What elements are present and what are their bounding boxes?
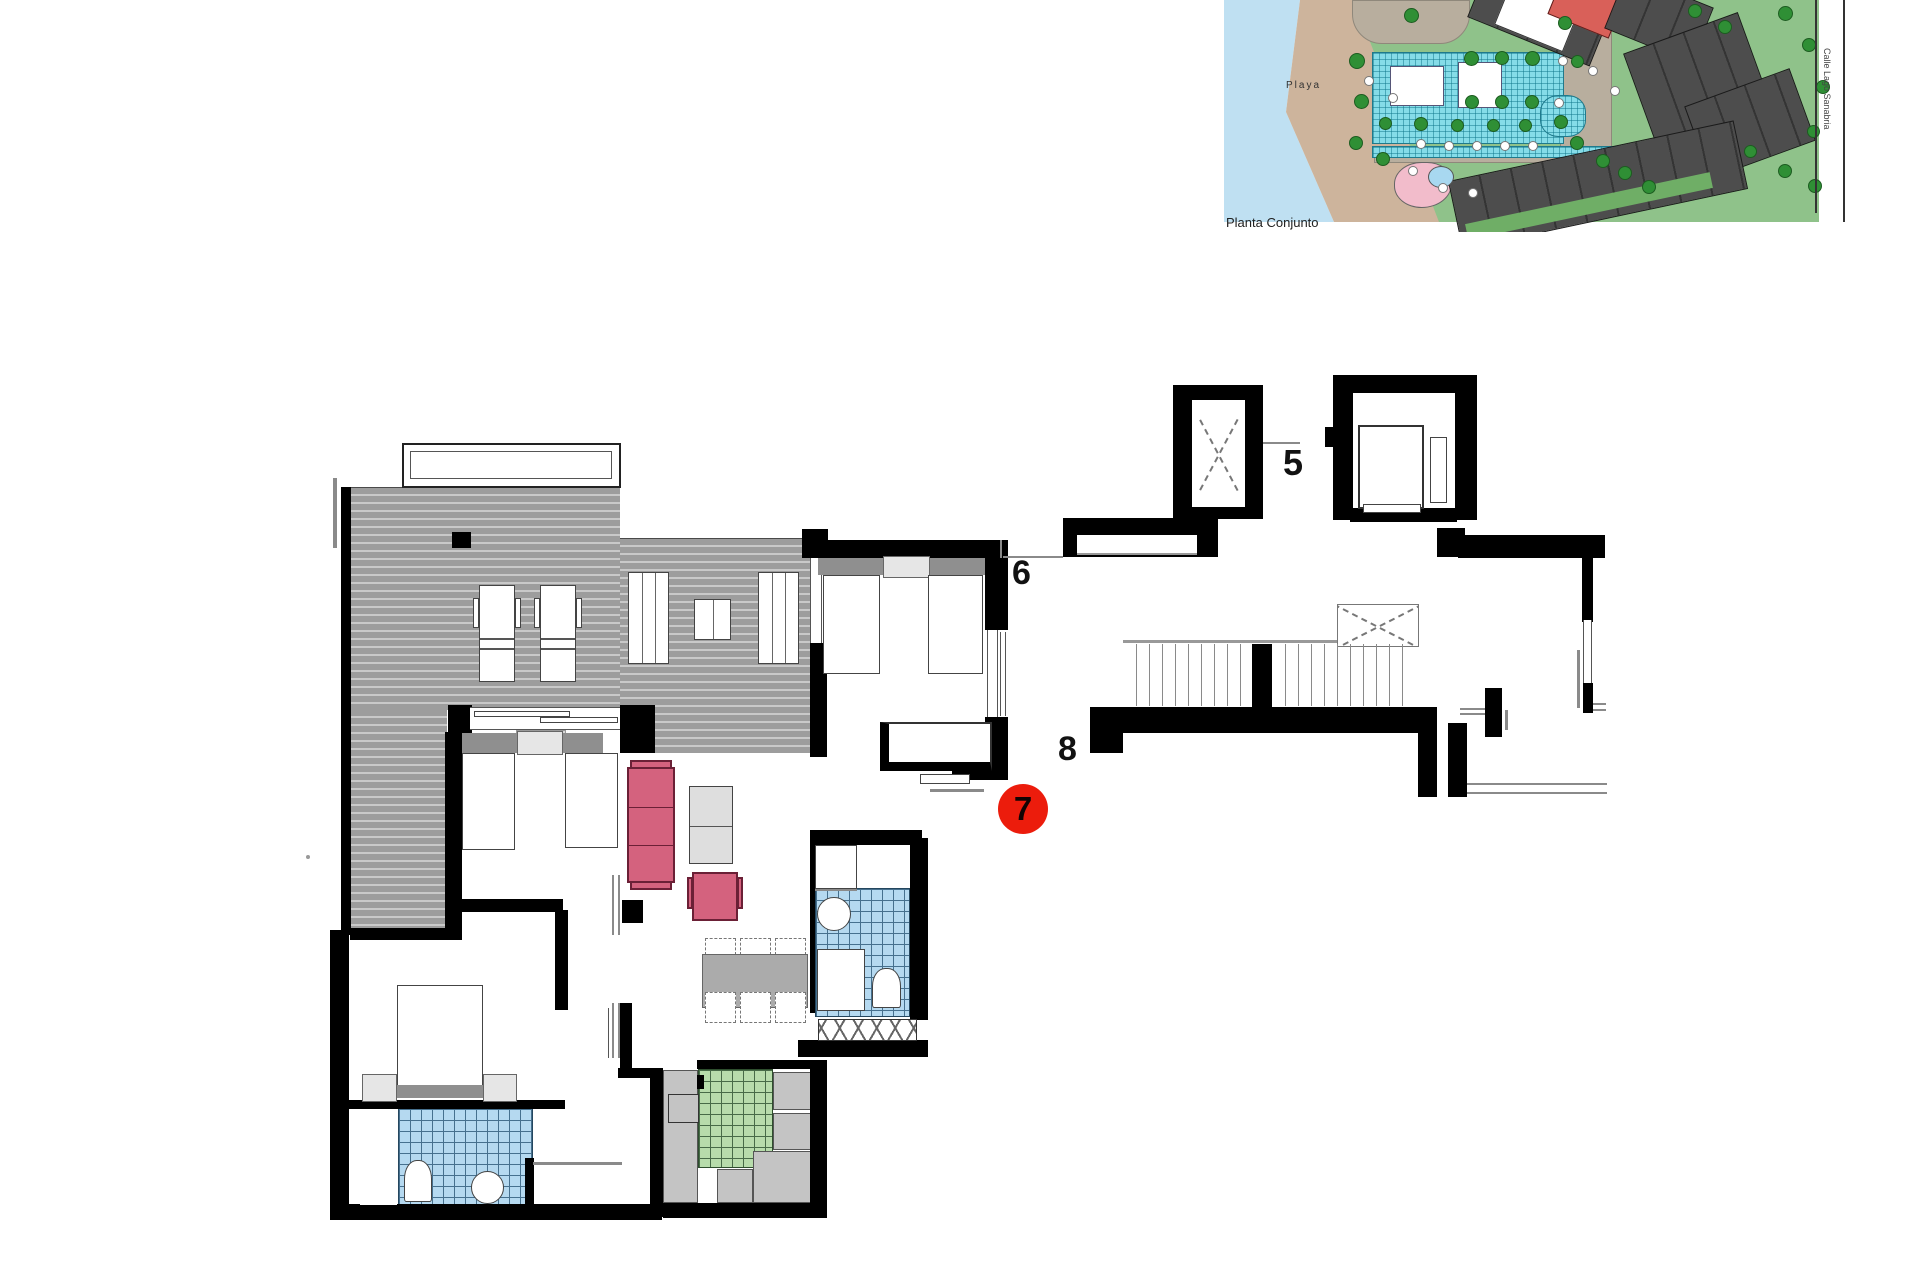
landing-label-6: 6	[1012, 556, 1031, 590]
single-bed	[823, 575, 880, 674]
sun-lounger	[540, 585, 576, 682]
wall-segment	[1485, 688, 1502, 737]
tree-icon	[1596, 154, 1610, 168]
unit-7-number: 7	[1014, 790, 1032, 828]
wall-segment	[458, 899, 563, 912]
tree-icon	[1379, 117, 1392, 130]
tree-icon	[1451, 119, 1464, 132]
parasol-icon	[1558, 56, 1568, 66]
line-segment	[1000, 540, 1002, 558]
wall-segment	[341, 487, 351, 935]
line-segment	[1505, 710, 1508, 730]
wall-segment	[620, 1003, 632, 1073]
tree-icon	[1778, 164, 1792, 178]
wall-segment	[448, 705, 472, 733]
stair-tread	[1188, 644, 1189, 706]
window-sill	[360, 1197, 397, 1205]
shower-tray	[817, 949, 865, 1011]
elevator-panel	[1430, 437, 1447, 503]
tree-icon	[1807, 125, 1820, 138]
parasol-icon	[1588, 66, 1598, 76]
wall-segment	[810, 830, 922, 845]
lounger-armrest	[576, 598, 582, 628]
window	[1583, 620, 1592, 683]
wall-segment	[1455, 375, 1477, 520]
armchair-arm	[737, 877, 743, 909]
stair-tread	[1227, 644, 1228, 706]
tree-icon	[1570, 136, 1584, 150]
wall-segment	[697, 1075, 704, 1089]
tree-icon	[1744, 145, 1757, 158]
parasol-icon	[1408, 166, 1418, 176]
site-plan: Playa Calle Lago Sanabria Planta Conjunt…	[1224, 0, 1848, 232]
sliding-door-leaf	[540, 717, 618, 723]
line-segment	[1467, 783, 1607, 785]
terrace-deck	[350, 710, 447, 935]
site-plan-caption: Planta Conjunto	[1226, 215, 1319, 230]
parasol-icon	[1468, 188, 1478, 198]
wall-segment	[663, 1203, 827, 1218]
elevator-shaft	[1192, 400, 1245, 507]
line-segment	[1460, 708, 1485, 710]
tree-icon	[1554, 115, 1568, 129]
stair-tread	[1350, 644, 1351, 706]
tree-icon	[1519, 119, 1532, 132]
elevator-door	[1363, 504, 1421, 513]
line-segment	[1467, 792, 1607, 794]
wall-segment	[1252, 644, 1272, 707]
dining-chair	[740, 992, 771, 1023]
nightstand	[362, 1074, 397, 1102]
wall-segment	[697, 1060, 810, 1069]
sofa	[627, 767, 675, 883]
tree-icon	[1778, 6, 1793, 21]
line-segment	[612, 875, 614, 935]
tree-icon	[1718, 20, 1732, 34]
coffee-table	[689, 786, 733, 864]
parasol-icon	[1388, 93, 1398, 103]
line-segment	[930, 789, 984, 792]
tree-icon	[1688, 4, 1702, 18]
kitchen-counter	[773, 1113, 811, 1150]
tree-icon	[1349, 53, 1365, 69]
tree-icon	[1495, 51, 1509, 65]
tree-icon	[1487, 119, 1500, 132]
wall-segment	[1583, 683, 1593, 713]
sofa-arm	[630, 881, 672, 890]
line-segment	[1577, 650, 1580, 708]
core-label-5: 5	[1283, 445, 1303, 481]
street-boundary-line	[1815, 0, 1817, 213]
stair-tread	[1324, 644, 1325, 706]
stair-tread	[1162, 644, 1163, 706]
terrace-chair	[758, 572, 799, 664]
street-edge-line	[1843, 0, 1845, 222]
stair-tread	[1285, 644, 1286, 706]
bench	[920, 774, 970, 784]
stair-tread	[1201, 644, 1202, 706]
toilet	[404, 1160, 432, 1202]
stair-tread	[1311, 644, 1312, 706]
parasol-icon	[1416, 139, 1426, 149]
unit-7-badge: 7	[998, 784, 1048, 834]
parasol-icon	[1438, 183, 1448, 193]
dining-chair	[705, 992, 736, 1023]
line-segment	[533, 1162, 622, 1165]
washbasin	[471, 1171, 504, 1204]
toilet	[872, 968, 901, 1008]
wall-segment	[1448, 723, 1467, 797]
wall-segment	[810, 1060, 827, 1217]
wall-segment	[445, 732, 462, 940]
double-bed	[397, 985, 483, 1087]
stair-tread	[1149, 644, 1150, 706]
wall-segment	[330, 930, 349, 1220]
wall-segment	[350, 928, 450, 940]
wall-segment	[622, 900, 643, 923]
stair-tread	[1376, 644, 1377, 706]
kitchen-island	[717, 1169, 753, 1203]
wall-segment	[650, 1068, 663, 1217]
single-bed	[928, 575, 983, 674]
stair-tread	[1240, 644, 1241, 706]
elevator-car	[1358, 425, 1424, 509]
tree-icon	[1642, 180, 1656, 194]
kitchen-counter	[773, 1072, 811, 1110]
lounger-armrest	[534, 598, 540, 628]
tree-icon	[1349, 136, 1363, 150]
wall-segment	[1418, 707, 1437, 797]
single-bed	[462, 753, 515, 850]
stair-tread	[1337, 644, 1338, 706]
window	[987, 630, 998, 717]
stair-tread	[1214, 644, 1215, 706]
stair-tread	[1389, 644, 1390, 706]
parasol-icon	[1554, 98, 1564, 108]
stair-tread	[1298, 644, 1299, 706]
wall-segment	[1090, 707, 1123, 753]
line-segment	[618, 875, 620, 935]
dining-chair	[775, 992, 806, 1023]
stray-mark	[306, 855, 310, 859]
landing-label-8: 8	[1058, 732, 1077, 766]
wall-segment	[555, 910, 568, 1010]
parasol-icon	[1528, 141, 1538, 151]
wall-segment	[525, 1158, 534, 1205]
wall-segment	[1458, 535, 1605, 558]
pool-island	[1390, 66, 1444, 106]
landing-doorway	[1077, 535, 1197, 555]
desk	[880, 722, 992, 771]
tree-icon	[1802, 38, 1816, 52]
line-segment	[1460, 713, 1485, 715]
bathroom-closet	[815, 845, 857, 889]
tree-icon	[1558, 16, 1572, 30]
tree-icon	[1525, 95, 1539, 109]
parasol-icon	[1444, 141, 1454, 151]
tree-icon	[1464, 51, 1479, 66]
wall-segment	[1582, 558, 1593, 622]
wall-segment	[452, 532, 471, 548]
beach-label: Playa	[1286, 80, 1321, 91]
line-segment	[1593, 709, 1606, 711]
tree-icon	[1414, 117, 1428, 131]
nightstand	[883, 556, 930, 578]
bed-footboard	[397, 1085, 483, 1098]
lounger-armrest	[515, 598, 521, 628]
wardrobe	[818, 1019, 917, 1041]
tree-icon	[1525, 51, 1540, 66]
tree-icon	[1495, 95, 1509, 109]
armchair	[692, 872, 738, 921]
line-segment	[1593, 703, 1606, 705]
wall-segment	[1333, 375, 1353, 520]
tree-icon	[1465, 95, 1479, 109]
stair-tread	[1175, 644, 1176, 706]
parasol-icon	[1610, 86, 1620, 96]
parasol-icon	[1500, 141, 1510, 151]
stair-tread	[1402, 644, 1403, 706]
parasol-icon	[1472, 141, 1482, 151]
tree-icon	[1404, 8, 1419, 23]
wall-segment	[1090, 707, 1437, 733]
kitchen-counter	[663, 1070, 698, 1203]
washbasin	[817, 897, 851, 931]
sun-lounger	[479, 585, 515, 682]
parasol-icon	[1364, 76, 1374, 86]
armchair-arm	[687, 877, 693, 909]
tree-icon	[1618, 166, 1632, 180]
terrace-planter-inner	[410, 451, 612, 479]
kitchen-appliance	[668, 1094, 699, 1123]
stair-tread	[1363, 644, 1364, 706]
wall-segment	[985, 558, 1008, 630]
kitchen-counter	[753, 1151, 811, 1203]
tree-icon	[1376, 152, 1390, 166]
line-segment	[333, 478, 337, 548]
nightstand	[483, 1074, 517, 1102]
wall-segment	[620, 705, 655, 753]
tree-icon	[1571, 55, 1584, 68]
line-segment	[612, 1003, 614, 1058]
stair-skylight	[1337, 604, 1419, 647]
nightstand	[517, 731, 563, 755]
floor-plan-page: Playa Calle Lago Sanabria Planta Conjunt…	[0, 0, 1920, 1280]
terrace-chair	[628, 572, 669, 664]
single-bed	[565, 753, 618, 848]
street-label: Calle Lago Sanabria	[1822, 48, 1832, 188]
window-sill-line	[1000, 632, 1006, 716]
wall-segment	[337, 1204, 662, 1220]
tree-icon	[1354, 94, 1369, 109]
wall-segment	[910, 838, 928, 1020]
wall-segment	[798, 1040, 928, 1057]
stair-tread	[1136, 644, 1137, 706]
lounger-armrest	[473, 598, 479, 628]
sofa-arm	[630, 760, 672, 769]
terrace-table	[694, 599, 731, 640]
line-segment	[618, 1003, 620, 1058]
